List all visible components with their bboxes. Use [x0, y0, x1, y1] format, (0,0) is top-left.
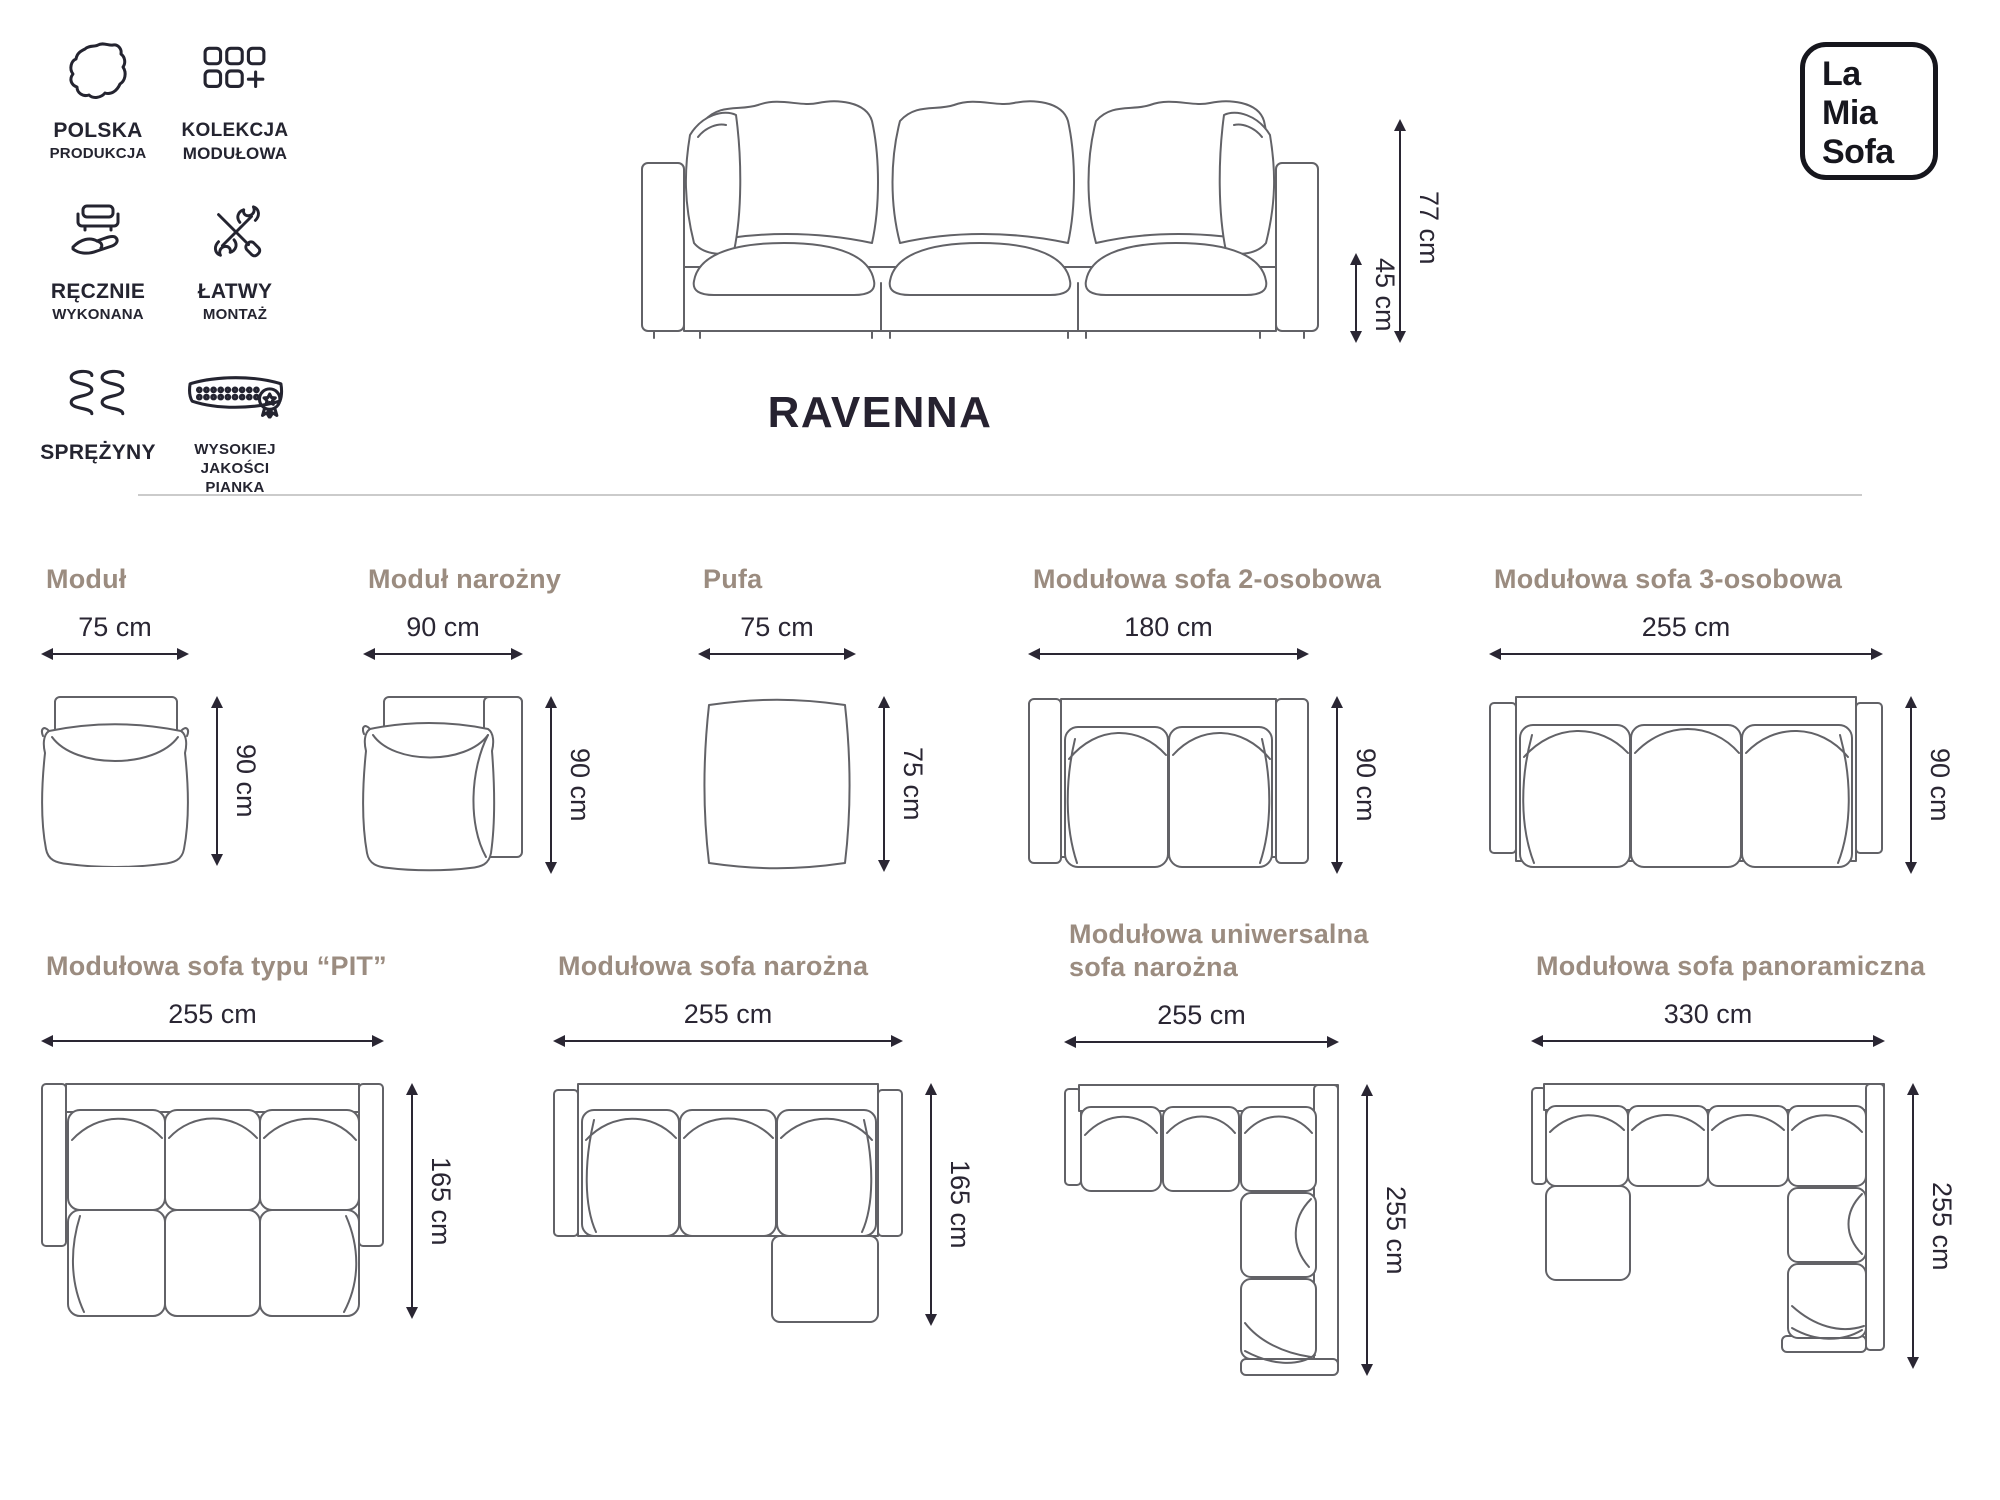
badge-sublabel: JAKOŚCI PIANKA — [170, 459, 300, 497]
width-dimension-arrow — [365, 653, 521, 655]
width-dimension-arrow — [1066, 1041, 1337, 1043]
total-height-dimension-arrow — [1399, 121, 1401, 341]
depth-dimension-label: 90 cm — [1350, 748, 1381, 822]
width-dimension-arrow — [700, 653, 854, 655]
variant-name: Modułowa sofa 3-osobowa — [1488, 563, 1955, 596]
badge-label: ŁATWY — [170, 279, 300, 305]
sofa-2-top-view-drawing — [1027, 695, 1310, 875]
width-dimension-label: 255 cm — [40, 999, 385, 1030]
depth-dimension-arrow — [216, 698, 218, 864]
modular-collection-icon — [170, 34, 300, 110]
depth-dimension-label: 255 cm — [1380, 1186, 1411, 1275]
corner-module-top-view-drawing — [362, 695, 524, 875]
depth-dimension-arrow — [930, 1085, 932, 1324]
width-dimension-label: 180 cm — [1027, 612, 1310, 643]
variant-name: Pufa — [697, 563, 928, 596]
width-dimension-label: 255 cm — [552, 999, 904, 1030]
universal-corner-sofa-top-view-drawing — [1063, 1083, 1340, 1377]
depth-dimension-arrow — [883, 698, 885, 870]
variant-sofa-panoramiczna: Modułowa sofa panoramiczna 330 cm — [1530, 950, 1957, 1370]
depth-dimension-arrow — [1912, 1085, 1914, 1367]
width-dimension-label: 90 cm — [362, 612, 524, 643]
width-dimension-arrow — [555, 1040, 901, 1042]
width-dimension-label: 75 cm — [697, 612, 857, 643]
variant-pufa: Pufa 75 cm 75 cm — [697, 563, 928, 873]
variant-name-line1: Modułowa uniwersalna — [1063, 918, 1411, 951]
badge-label: WYSOKIEJ — [170, 440, 300, 459]
badge-polska-produkcja: POLSKA PRODUKCJA — [36, 34, 160, 163]
panoramic-sofa-top-view-drawing — [1530, 1082, 1886, 1370]
width-dimension-label: 255 cm — [1488, 612, 1884, 643]
seat-height-dimension-arrow — [1355, 255, 1357, 341]
logo-line: La — [1822, 55, 1933, 94]
variant-uniwersalna-sofa-narozna: Modułowa uniwersalna sofa narożna 255 cm — [1063, 918, 1411, 1377]
total-height-dimension-label: 77 cm — [1413, 118, 1444, 338]
variant-name: Moduł — [40, 563, 261, 596]
product-title: RAVENNA — [640, 388, 1120, 438]
handmade-icon — [36, 195, 160, 271]
variant-sofa-narozna: Modułowa sofa narożna 255 cm 165 cm — [552, 950, 975, 1327]
feature-badges: POLSKA PRODUKCJA KOLEKCJA MODUŁOWA — [36, 34, 300, 497]
variant-sofa-2-osobowa: Modułowa sofa 2-osobowa 180 cm 90 cm — [1027, 563, 1381, 875]
variant-name: Modułowa sofa panoramiczna — [1530, 950, 1957, 983]
variant-modul-narozny: Moduł narożny 90 cm 90 cm — [362, 563, 595, 875]
depth-dimension-label: 165 cm — [944, 1160, 975, 1249]
sofa-3-top-view-drawing — [1488, 695, 1884, 875]
badge-label: POLSKA — [36, 118, 160, 144]
foam-quality-icon — [170, 356, 300, 432]
variant-name-line2: sofa narożna — [1063, 951, 1411, 984]
badge-kolekcja-modulowa: KOLEKCJA MODUŁOWA — [170, 34, 300, 163]
depth-dimension-arrow — [411, 1085, 413, 1317]
depth-dimension-arrow — [550, 698, 552, 872]
badge-sublabel: WYKONANA — [36, 305, 160, 324]
badge-sublabel: PRODUKCJA — [36, 144, 160, 163]
badge-label: KOLEKCJA — [170, 118, 300, 144]
variant-sofa-3-osobowa: Modułowa sofa 3-osobowa 255 cm 90 cm — [1488, 563, 1955, 875]
badge-sprezyny: SPRĘŻYNY — [36, 356, 160, 497]
la-mia-sofa-logo: La Mia Sofa — [1800, 42, 1938, 180]
depth-dimension-label: 75 cm — [897, 747, 928, 821]
corner-sofa-top-view-drawing — [552, 1082, 904, 1327]
badge-wysokiej-jakosci-pianka: WYSOKIEJ JAKOŚCI PIANKA — [170, 356, 300, 497]
badge-sublabel: MONTAŻ — [170, 305, 300, 324]
section-divider — [138, 494, 1862, 496]
width-dimension-label: 255 cm — [1063, 1000, 1340, 1031]
poland-map-icon — [36, 34, 160, 110]
springs-icon — [36, 356, 160, 432]
badge-recznie-wykonana: RĘCZNIE WYKONANA — [36, 195, 160, 324]
logo-line: Sofa — [1822, 133, 1933, 172]
width-dimension-label: 75 cm — [40, 612, 190, 643]
width-dimension-arrow — [1533, 1040, 1883, 1042]
width-dimension-label: 330 cm — [1530, 999, 1886, 1030]
spec-sheet: POLSKA PRODUKCJA KOLEKCJA MODUŁOWA — [0, 0, 2000, 1500]
badge-label: RĘCZNIE — [36, 279, 160, 305]
depth-dimension-arrow — [1910, 698, 1912, 872]
depth-dimension-label: 90 cm — [1924, 748, 1955, 822]
depth-dimension-arrow — [1336, 698, 1338, 872]
variant-modul: Moduł 75 cm 90 cm — [40, 563, 261, 867]
easy-assembly-icon — [170, 195, 300, 271]
width-dimension-arrow — [43, 1040, 382, 1042]
badge-label: SPRĘŻYNY — [36, 440, 160, 466]
depth-dimension-arrow — [1366, 1086, 1368, 1374]
module-top-view-drawing — [40, 695, 190, 867]
width-dimension-arrow — [1491, 653, 1881, 655]
logo-line: Mia — [1822, 94, 1933, 133]
badge-latwy-montaz: ŁATWY MONTAŻ — [170, 195, 300, 324]
variant-name: Modułowa sofa narożna — [552, 950, 975, 983]
width-dimension-arrow — [43, 653, 187, 655]
width-dimension-arrow — [1030, 653, 1307, 655]
pouf-top-view-drawing — [697, 695, 857, 873]
depth-dimension-label: 90 cm — [564, 748, 595, 822]
sofa-front-view-drawing — [640, 85, 1320, 340]
pit-sofa-top-view-drawing — [40, 1082, 385, 1320]
seat-height-dimension-label: 45 cm — [1369, 252, 1400, 338]
variant-name: Moduł narożny — [362, 563, 595, 596]
variant-sofa-pit: Modułowa sofa typu “PIT” 255 cm 165 — [40, 950, 456, 1320]
depth-dimension-label: 90 cm — [230, 744, 261, 818]
badge-sublabel: MODUŁOWA — [170, 144, 300, 163]
depth-dimension-label: 255 cm — [1926, 1182, 1957, 1271]
depth-dimension-label: 165 cm — [425, 1157, 456, 1246]
variant-name: Modułowa sofa typu “PIT” — [40, 950, 456, 983]
variant-name: Modułowa sofa 2-osobowa — [1027, 563, 1381, 596]
